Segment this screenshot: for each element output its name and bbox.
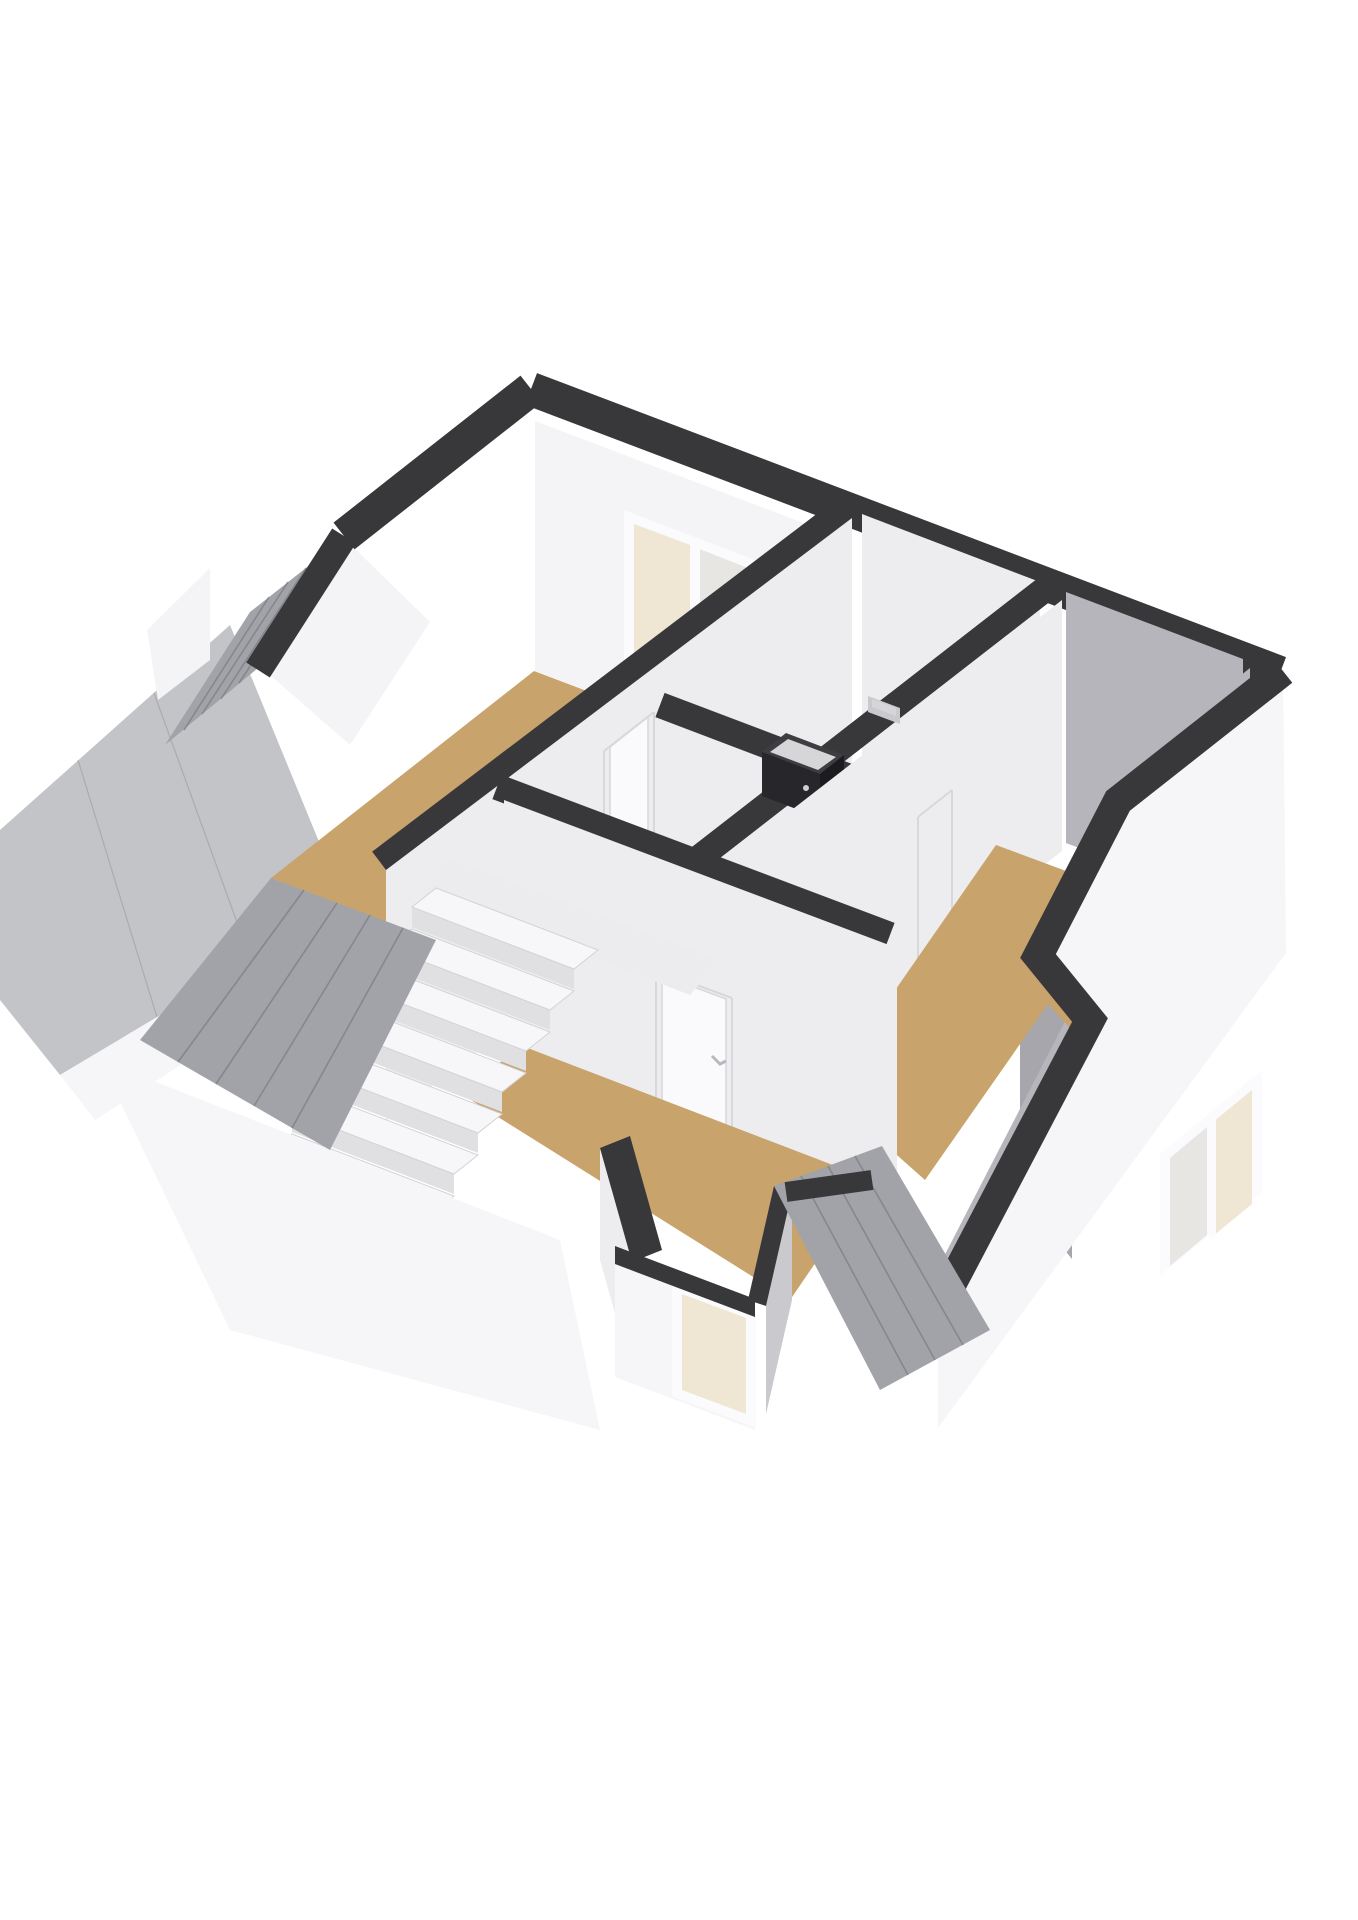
wall-top-northwest (344, 389, 531, 536)
boiler-valve (803, 785, 809, 791)
floor-plan-3d-render (0, 0, 1358, 1920)
floor-plan-canvas (0, 0, 1358, 1920)
wall-top-dormer-junction (786, 1180, 872, 1192)
window-mullion (1210, 1119, 1216, 1240)
